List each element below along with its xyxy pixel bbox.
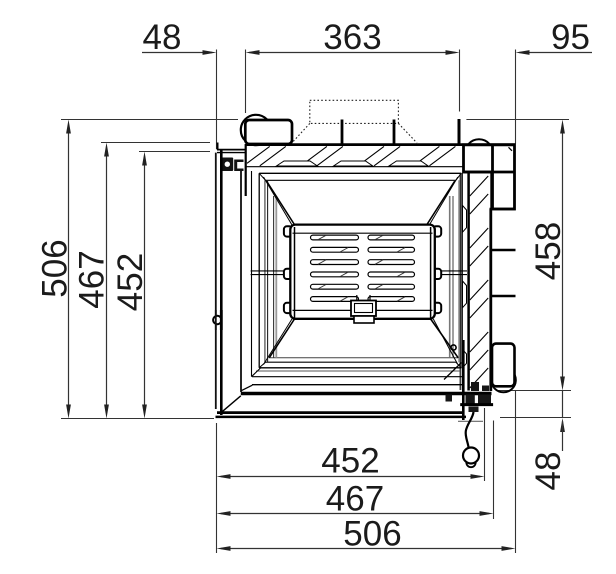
svg-text:363: 363 xyxy=(323,18,381,57)
svg-text:506: 506 xyxy=(36,239,75,297)
svg-text:95: 95 xyxy=(551,18,590,57)
svg-text:467: 467 xyxy=(73,250,112,308)
svg-text:452: 452 xyxy=(111,253,150,311)
svg-text:467: 467 xyxy=(326,480,384,519)
svg-text:458: 458 xyxy=(529,222,568,280)
svg-text:48: 48 xyxy=(143,18,182,57)
svg-text:48: 48 xyxy=(529,452,568,491)
svg-text:506: 506 xyxy=(343,515,401,554)
svg-text:452: 452 xyxy=(321,442,379,481)
